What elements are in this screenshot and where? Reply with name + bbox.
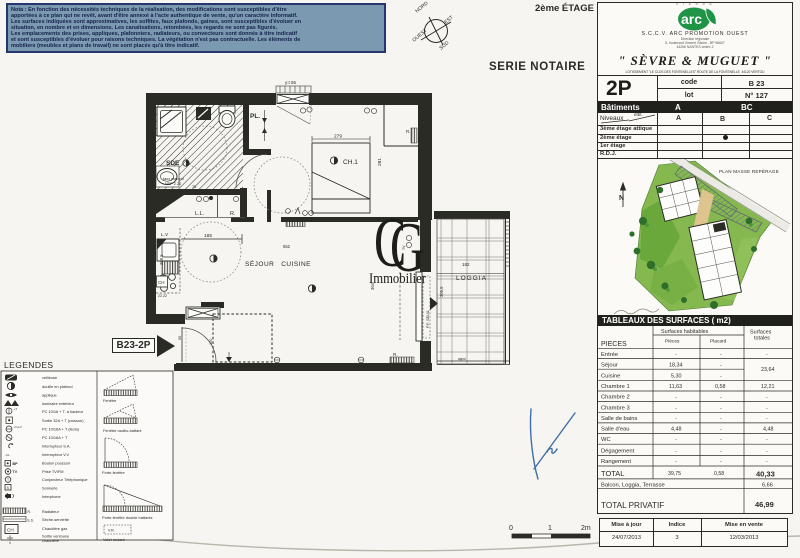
- svg-text:L.L.: L.L.: [195, 211, 205, 217]
- svg-text:R.: R.: [230, 211, 236, 217]
- svg-text:4,48: 4,48: [671, 427, 682, 433]
- svg-text:11,63: 11,63: [669, 384, 682, 390]
- svg-text:faux plafond: faux plafond: [163, 177, 184, 181]
- svg-text:Immobilier: Immobilier: [369, 271, 426, 287]
- svg-text:-: -: [720, 448, 722, 454]
- svg-text:-: -: [675, 352, 677, 358]
- svg-text:Chambre 1: Chambre 1: [601, 384, 630, 390]
- svg-text:-: -: [766, 405, 768, 411]
- svg-text:306,5: 306,5: [439, 286, 444, 297]
- svg-text:Bouton poussoir: Bouton poussoir: [42, 461, 71, 466]
- svg-text:Sortie 32A + T (cuisson): Sortie 32A + T (cuisson): [42, 418, 84, 423]
- svg-text:281: 281: [377, 158, 383, 166]
- svg-text:39,75: 39,75: [668, 471, 681, 477]
- svg-text:4,48: 4,48: [763, 427, 774, 433]
- svg-text:-: -: [720, 416, 722, 422]
- svg-text:appui: appui: [458, 357, 466, 361]
- svg-text:veilleuse: veilleuse: [42, 375, 57, 380]
- svg-text:298,5: 298,5: [159, 254, 164, 265]
- svg-text:PIECES: PIECES: [601, 341, 627, 348]
- svg-text:-: -: [766, 448, 768, 454]
- svg-text:-: -: [766, 437, 768, 443]
- svg-text:-: -: [675, 459, 677, 465]
- svg-text:0,58: 0,58: [715, 384, 726, 390]
- svg-text:5,30: 5,30: [671, 374, 682, 380]
- svg-text:279: 279: [334, 134, 342, 140]
- svg-text:TOTAL PRIVATIF: TOTAL PRIVATIF: [601, 501, 664, 510]
- svg-text:R.: R.: [406, 129, 411, 134]
- svg-text:TV: TV: [13, 470, 18, 474]
- svg-text:Surfaces habitables: Surfaces habitables: [661, 329, 709, 335]
- svg-text:CH.1: CH.1: [343, 159, 358, 166]
- svg-text:6,66: 6,66: [762, 483, 773, 489]
- svg-text:Rangement: Rangement: [601, 459, 631, 465]
- svg-text:+T+LV: +T+LV: [14, 425, 22, 429]
- svg-text:V.R.: V.R.: [108, 529, 115, 533]
- svg-text:Interrupteur S.A.: Interrupteur S.A.: [42, 444, 71, 449]
- svg-text:y:t 55: y:t 55: [285, 80, 297, 85]
- svg-text:-: -: [675, 448, 677, 454]
- svg-text:-: -: [675, 395, 677, 401]
- svg-text:SDE: SDE: [166, 160, 180, 167]
- svg-text:Sonnerie: Sonnerie: [42, 486, 58, 491]
- svg-text:22.22: 22.22: [158, 294, 167, 298]
- svg-text:chaudière: chaudière: [42, 538, 59, 543]
- svg-text:Porte-fenêtre double battants: Porte-fenêtre double battants: [102, 515, 152, 520]
- svg-text:CH: CH: [7, 528, 14, 533]
- svg-text:182: 182: [462, 262, 470, 267]
- svg-text:+T: +T: [14, 407, 18, 411]
- svg-text:-: -: [720, 459, 722, 465]
- svg-text:-: -: [766, 352, 768, 358]
- svg-text:-: -: [766, 459, 768, 465]
- svg-text:N: N: [619, 195, 624, 202]
- svg-text:L.V: L.V: [161, 232, 169, 238]
- svg-text:18,34: 18,34: [669, 363, 683, 369]
- svg-text:Chaudière gaz: Chaudière gaz: [42, 526, 67, 531]
- svg-text:-: -: [720, 405, 722, 411]
- svg-text:-: -: [720, 395, 722, 401]
- svg-text:1: 1: [548, 525, 552, 532]
- svg-text:SÉJOUR CUISINE: SÉJOUR CUISINE: [245, 259, 311, 268]
- svg-text:-: -: [720, 374, 722, 380]
- svg-text:Placard: Placard: [710, 339, 727, 345]
- svg-text:Sèche-serviette: Sèche-serviette: [42, 517, 69, 522]
- svg-text:Entrée: Entrée: [601, 352, 618, 358]
- svg-text:-: -: [766, 416, 768, 422]
- svg-text:CH: CH: [158, 280, 165, 285]
- svg-text:75: 75: [192, 185, 196, 189]
- svg-text:PLAN MASSE REPÉRAGE: PLAN MASSE REPÉRAGE: [719, 168, 779, 174]
- svg-text:-: -: [675, 437, 677, 443]
- svg-text:Balcon, Loggia, Terrasse: Balcon, Loggia, Terrasse: [601, 483, 665, 489]
- svg-text:Porte-fenêtre: Porte-fenêtre: [102, 470, 125, 475]
- svg-text:R.: R.: [393, 352, 398, 357]
- svg-text:2m: 2m: [581, 525, 591, 532]
- svg-text:Interphone: Interphone: [42, 494, 61, 499]
- svg-text:LOGGIA: LOGGIA: [456, 275, 487, 282]
- svg-text:-: -: [720, 363, 722, 369]
- svg-text:P.F. SEUIL: P.F. SEUIL: [426, 310, 430, 328]
- svg-text:arc: arc: [681, 11, 702, 27]
- svg-text:Salle d'eau: Salle d'eau: [601, 427, 630, 433]
- svg-text:douille en plafond: douille en plafond: [42, 384, 73, 389]
- svg-text:90: 90: [178, 336, 182, 340]
- svg-text:120: 120: [209, 339, 213, 345]
- svg-text:Séjour: Séjour: [601, 363, 618, 369]
- svg-text:luminaire extérieur: luminaire extérieur: [42, 401, 75, 406]
- svg-text:Dégagement: Dégagement: [601, 448, 635, 454]
- svg-text:552: 552: [283, 244, 291, 249]
- svg-text:0: 0: [509, 525, 513, 532]
- svg-text:NORD: NORD: [414, 0, 429, 14]
- svg-text:185: 185: [204, 233, 212, 239]
- svg-text:LEGENDES: LEGENDES: [4, 360, 54, 370]
- svg-text:0,58: 0,58: [714, 471, 724, 477]
- svg-text:applique: applique: [42, 393, 57, 398]
- svg-text:Fenêtre oscillo-battant: Fenêtre oscillo-battant: [103, 428, 142, 433]
- svg-text:Salle de bains: Salle de bains: [601, 416, 638, 422]
- svg-text:23,64: 23,64: [761, 367, 775, 373]
- svg-text:Interrupteur V.V: Interrupteur V.V: [42, 452, 70, 457]
- svg-text:PC 10/16A + T: PC 10/16A + T: [42, 435, 68, 440]
- svg-text:WC: WC: [601, 437, 611, 443]
- svg-text:PC 10/16 + T. à hauteur: PC 10/16 + T. à hauteur: [42, 409, 84, 414]
- svg-text:PC 10/16A + T (lécla): PC 10/16A + T (lécla): [42, 427, 80, 432]
- svg-text:PL.: PL.: [250, 113, 260, 120]
- svg-text:totales: totales: [754, 336, 770, 342]
- svg-text:Chambre 2: Chambre 2: [601, 395, 630, 401]
- svg-text:Fenêtre: Fenêtre: [103, 398, 116, 403]
- svg-text:-o-: -o-: [5, 452, 11, 457]
- svg-text:T: T: [7, 478, 9, 482]
- svg-text:EST: EST: [443, 15, 454, 26]
- svg-text:-: -: [720, 352, 722, 358]
- svg-text:TOTAL: TOTAL: [601, 469, 624, 478]
- svg-text:BP: BP: [13, 462, 19, 466]
- svg-text:Prise TV/FM: Prise TV/FM: [42, 469, 64, 474]
- svg-text:Volet roulant: Volet roulant: [103, 537, 126, 542]
- svg-text:-: -: [675, 416, 677, 422]
- svg-text:46,99: 46,99: [755, 500, 774, 509]
- svg-text:Radiateur: Radiateur: [42, 509, 60, 514]
- svg-text:-: -: [766, 395, 768, 401]
- svg-text:Conjoncteur Téléphonique: Conjoncteur Téléphonique: [42, 477, 88, 482]
- svg-text:Pièces: Pièces: [665, 339, 680, 345]
- svg-text:12,21: 12,21: [761, 384, 775, 390]
- svg-text:Chambre 3: Chambre 3: [601, 405, 630, 411]
- svg-text:-: -: [675, 405, 677, 411]
- svg-text:HSP 2.20: HSP 2.20: [165, 182, 181, 186]
- svg-text:-: -: [720, 437, 722, 443]
- svg-text:R.: R.: [28, 510, 31, 514]
- svg-text:E.S.: E.S.: [28, 519, 34, 523]
- svg-text:40,33: 40,33: [756, 470, 775, 479]
- svg-text:-: -: [720, 427, 722, 433]
- svg-text:Cuisine: Cuisine: [601, 374, 620, 380]
